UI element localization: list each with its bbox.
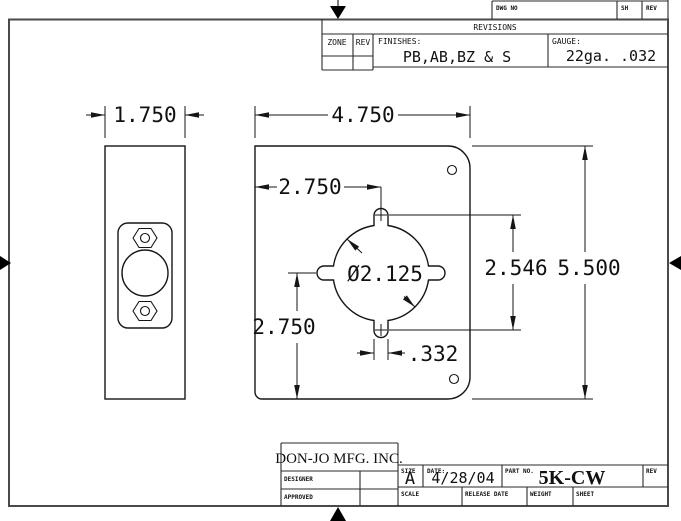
zone-label: ZONE — [327, 38, 346, 47]
svg-text:2.750: 2.750 — [278, 175, 341, 199]
gauge-label: GAUGE: — [552, 37, 581, 46]
gauge-value: 22ga. .032 — [566, 47, 656, 65]
weight-label: WEIGHT — [530, 491, 552, 498]
finishes-label: FINISHES: — [378, 37, 421, 46]
rosette-outline — [118, 223, 172, 328]
mounting-hole-bottom — [450, 375, 459, 384]
bottom-screw-hex-icon — [133, 302, 157, 321]
rev-strip-label: REV — [646, 5, 657, 12]
scale-label: SCALE — [401, 491, 419, 498]
dim-bore-offset-left: 2.750 — [255, 175, 381, 220]
dim-front-width: 1.750 — [86, 103, 204, 138]
size-value: A — [405, 469, 415, 489]
front-plate-outline — [105, 146, 185, 399]
dimensions: 1.750 4.750 2.750 Ø2.125 — [86, 103, 621, 399]
svg-text:1.750: 1.750 — [113, 103, 176, 127]
svg-text:.332: .332 — [408, 342, 459, 366]
date-value: 4/28/04 — [431, 469, 494, 487]
dim-bore-offset-bottom: 2.750 — [252, 273, 316, 399]
designer-label: DESIGNER — [284, 476, 313, 483]
svg-text:5.500: 5.500 — [557, 256, 620, 280]
front-view — [105, 146, 185, 399]
finishes-value: PB,AB,BZ & S — [403, 48, 511, 66]
svg-text:Ø2.125: Ø2.125 — [347, 262, 423, 286]
sheet-label: SHEET — [576, 491, 594, 498]
dim-bore-diameter: Ø2.125 — [347, 239, 423, 307]
part-no-label: PART NO. — [505, 468, 534, 475]
rev-title-label: REV — [646, 468, 657, 475]
centering-mark-right-icon — [669, 256, 681, 270]
release-date-label: RELEASE DATE — [465, 491, 509, 498]
company-name: DON-JO MFG. INC. — [275, 451, 403, 467]
part-no-value: 5K-CW — [539, 467, 606, 489]
svg-text:2.750: 2.750 — [252, 315, 315, 339]
rev-col-label: REV — [356, 38, 371, 47]
dim-lug-width: .332 — [357, 339, 458, 366]
dwg-no-label: DWG NO — [496, 5, 518, 12]
cad-drawing-svg: DWG NO SH REV REVISIONS ZONE REV FINISHE… — [0, 0, 681, 521]
mounting-hole-top — [448, 166, 457, 175]
approved-label: APPROVED — [284, 494, 313, 501]
title-block: DON-JO MFG. INC. DESIGNER APPROVED SIZE … — [275, 443, 668, 506]
drawing-sheet: DWG NO SH REV REVISIONS ZONE REV FINISHE… — [0, 0, 681, 521]
sh-label: SH — [621, 5, 629, 12]
bottom-screw-hole — [141, 307, 150, 316]
top-screw-hole — [141, 234, 150, 243]
revisions-block: REVISIONS ZONE REV FINISHES: PB,AB,BZ & … — [322, 19, 668, 70]
centering-mark-bottom-icon — [330, 507, 346, 521]
svg-text:2.546: 2.546 — [484, 256, 547, 280]
border-strip: DWG NO SH REV — [492, 0, 668, 19]
top-screw-hex-icon — [133, 229, 157, 248]
svg-text:4.750: 4.750 — [331, 103, 394, 127]
dim-plate-width: 4.750 — [255, 103, 470, 138]
cylinder-circle — [122, 250, 168, 296]
bottom-lug-crosshair-icon — [375, 324, 387, 336]
revisions-title: REVISIONS — [473, 23, 517, 32]
centering-mark-top-icon — [330, 6, 346, 19]
